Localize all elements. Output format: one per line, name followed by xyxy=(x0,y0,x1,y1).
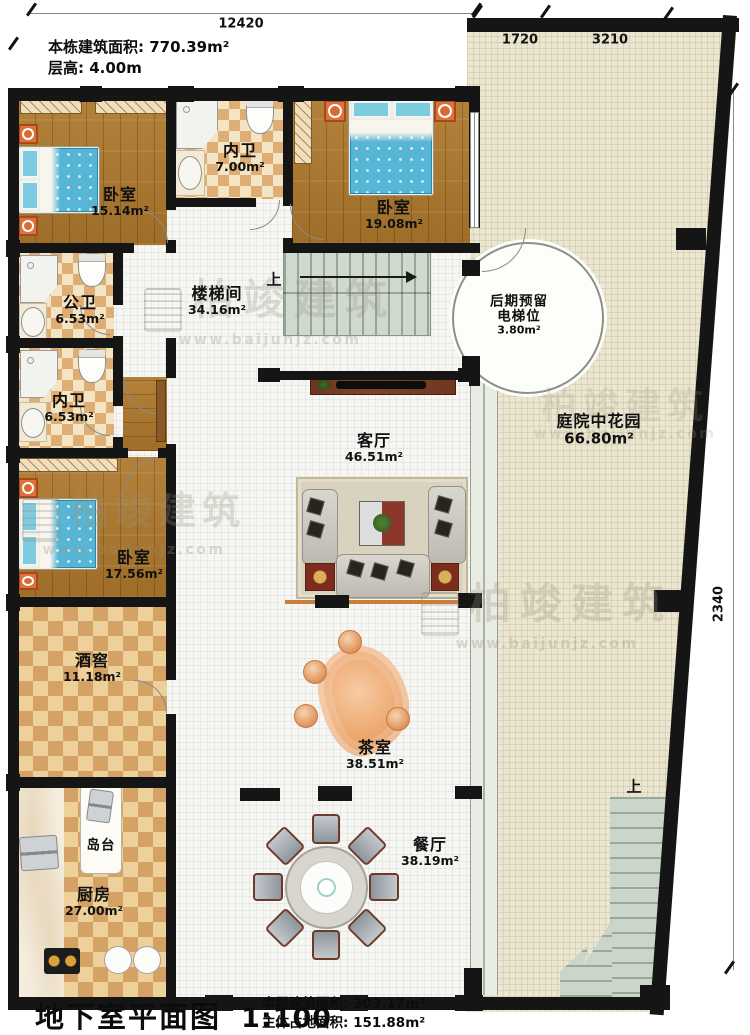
wall-courtyard-top xyxy=(467,18,739,32)
tea-stool xyxy=(303,660,327,684)
building-area-text: 本栋建筑面积: 770.39m² xyxy=(48,36,229,57)
island-sink xyxy=(86,788,114,823)
room-label-bedroom2: 卧室19.08m² xyxy=(365,199,423,231)
room-label-kitchen: 厨房27.00m² xyxy=(65,886,123,918)
nightstand xyxy=(434,100,456,122)
plant xyxy=(373,514,391,532)
room-label-stair-hall: 楼梯间34.16m² xyxy=(188,285,246,317)
window xyxy=(470,112,479,228)
wall xyxy=(318,786,352,801)
dimension-courtyard-seg1: 1720 xyxy=(502,33,538,48)
dining-table-center xyxy=(317,878,336,897)
wall xyxy=(166,788,176,1000)
tea-stool xyxy=(294,704,318,728)
round-counter xyxy=(133,946,161,974)
wall xyxy=(240,788,280,801)
wardrobe xyxy=(294,100,312,164)
stairs-direction-line xyxy=(300,276,408,278)
stairs-up-label: 上 xyxy=(626,776,641,797)
stairs-up-label: 上 xyxy=(266,269,281,290)
tv xyxy=(336,381,426,389)
tea-stool xyxy=(386,707,410,731)
wall xyxy=(258,371,480,380)
wall xyxy=(8,777,176,788)
pillow xyxy=(21,181,39,210)
stove xyxy=(44,948,80,974)
room-label-bath-public: 公卫6.53m² xyxy=(55,294,104,326)
pillow xyxy=(352,101,390,118)
wall-pier xyxy=(258,368,280,382)
wall-pier xyxy=(80,86,102,102)
dimension-line-top xyxy=(30,13,477,14)
nightstand xyxy=(324,100,346,122)
dimension-right-label: 2340 xyxy=(712,586,727,622)
end-table xyxy=(305,563,335,591)
wall xyxy=(8,338,123,348)
wall-pier xyxy=(455,995,483,1011)
wall-pier xyxy=(455,86,480,102)
wardrobe xyxy=(18,458,118,472)
nightstand xyxy=(18,572,38,590)
room-label-living: 客厅46.51m² xyxy=(345,432,403,464)
dimension-top-label: 12420 xyxy=(218,17,263,32)
wall xyxy=(458,593,482,608)
floor-area-text: 本层建筑面积: 303.17m² xyxy=(262,992,425,1012)
dining-chair xyxy=(312,814,340,844)
room-label-bath-inner2: 内卫6.53m² xyxy=(44,392,93,424)
bed-blanket xyxy=(350,120,432,142)
dimension-courtyard-seg2: 3210 xyxy=(592,33,628,48)
dimension-tick xyxy=(8,36,19,50)
wall xyxy=(113,348,123,406)
tea-stool xyxy=(338,630,362,654)
dimension-tick xyxy=(26,2,37,16)
wall-top xyxy=(8,88,480,101)
wall-pier xyxy=(654,590,684,612)
dining-chair xyxy=(369,873,399,901)
floor-plan-sheet: 12420 本栋建筑面积: 770.39m² 层高: 4.00m 1720 32… xyxy=(0,0,750,1035)
end-table xyxy=(431,563,459,591)
wall-left xyxy=(8,88,19,1010)
wall xyxy=(8,448,128,458)
wall xyxy=(283,88,293,206)
room-label-bedroom3: 卧室17.56m² xyxy=(105,549,163,581)
plant xyxy=(317,380,330,390)
dining-chair xyxy=(312,930,340,960)
wall-pier xyxy=(458,368,480,382)
room-label-courtyard: 庭院中花园66.80m² xyxy=(556,413,641,448)
dimension-tick xyxy=(540,4,551,18)
room-label-tea-room: 茶室38.51m² xyxy=(346,739,404,771)
stairs-direction-arrow xyxy=(406,271,417,283)
room-label-wine-cellar: 酒窖11.18m² xyxy=(63,652,121,684)
sink xyxy=(21,307,45,337)
door-leaf xyxy=(156,380,166,442)
wall xyxy=(455,786,482,799)
sink xyxy=(21,408,45,438)
bed-blanket xyxy=(40,148,60,212)
sink xyxy=(178,156,202,190)
wardrobe xyxy=(95,99,167,114)
wall xyxy=(166,606,176,680)
wall xyxy=(166,444,176,606)
floor-height-text: 层高: 4.00m xyxy=(48,57,142,78)
wall xyxy=(283,243,480,253)
bed-blanket xyxy=(40,500,58,568)
island-label: 岛台 xyxy=(87,838,116,853)
pillow xyxy=(21,149,39,178)
dining-chair xyxy=(253,873,283,901)
counter-sink xyxy=(19,835,59,872)
nightstand xyxy=(18,124,38,144)
wall xyxy=(166,338,176,378)
pillow xyxy=(394,101,432,118)
glass-wall-strip xyxy=(470,383,498,995)
room-label-dining: 餐厅38.19m² xyxy=(401,836,459,868)
footprint-area-text: 主体占地面积: 151.88m² xyxy=(262,1011,425,1031)
pillow xyxy=(21,535,38,566)
threshold xyxy=(285,600,461,604)
wall xyxy=(113,243,123,305)
wall-pier xyxy=(676,228,706,250)
room-label-bedroom1: 卧室15.14m² xyxy=(91,186,149,218)
stairs-divider xyxy=(283,292,431,294)
dimension-line-right xyxy=(733,90,734,970)
wall xyxy=(166,88,176,210)
nightstand xyxy=(18,216,38,236)
wall-right-elevator-stub xyxy=(462,260,480,276)
wardrobe xyxy=(20,99,82,114)
wall xyxy=(315,595,349,608)
room-label-elevator: 后期预留电梯位3.80m² xyxy=(484,295,554,338)
pillow xyxy=(21,501,38,532)
wall xyxy=(8,597,176,607)
wall xyxy=(172,198,256,207)
round-counter xyxy=(104,946,132,974)
nightstand xyxy=(18,478,38,498)
room-label-bath-inner1: 内卫7.00m² xyxy=(215,142,264,174)
